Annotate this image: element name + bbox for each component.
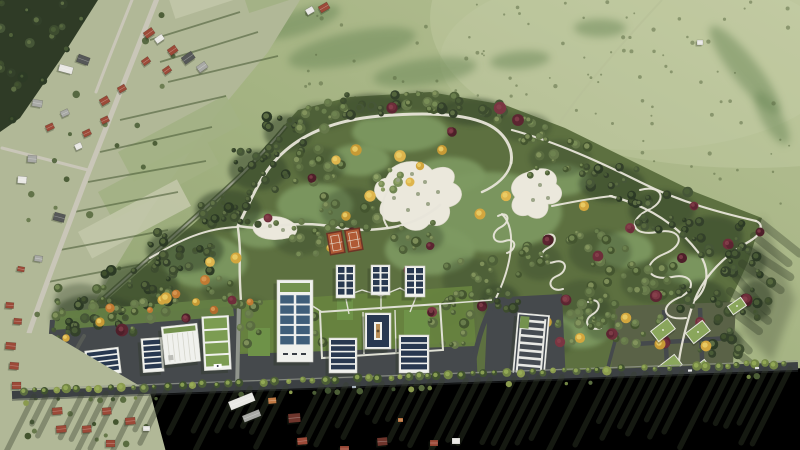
tree-highlight	[711, 297, 715, 301]
tree-highlight	[479, 106, 485, 112]
solar-panel	[401, 357, 427, 362]
tree-highlight	[150, 286, 155, 291]
road-tree	[418, 385, 424, 391]
tree-highlight	[340, 223, 344, 227]
solar-panel	[347, 267, 354, 273]
tree-highlight	[252, 182, 255, 185]
solar-panel	[382, 322, 389, 340]
meadow-speckle	[650, 122, 654, 126]
tree-highlight	[545, 171, 548, 174]
yellow-highlight	[576, 334, 581, 339]
green-roof-strip	[280, 283, 310, 292]
solar-panel	[338, 289, 345, 295]
tree-highlight	[735, 237, 738, 240]
tree-highlight	[101, 285, 104, 288]
tree-highlight	[404, 92, 407, 95]
tree-highlight	[686, 220, 691, 225]
tree-highlight	[563, 167, 566, 170]
tree-highlight	[467, 311, 472, 316]
meadow-speckle	[749, 1, 752, 4]
tree-highlight	[316, 240, 321, 245]
meadow-speckle	[629, 49, 633, 53]
tree-highlight	[123, 315, 127, 319]
tree-highlight	[390, 186, 394, 190]
plaza-tree	[406, 208, 410, 212]
building-b7	[368, 265, 391, 299]
building-b6	[333, 265, 356, 302]
tree-highlight	[585, 245, 590, 250]
road-tree	[334, 389, 340, 395]
road-tree-highlight	[86, 387, 89, 390]
forest-tree-light	[61, 2, 64, 5]
entrance-mark	[292, 353, 297, 355]
road-tree	[289, 390, 293, 394]
village-house	[11, 382, 22, 391]
tree-highlight	[449, 342, 452, 345]
tree-highlight	[578, 233, 582, 237]
meadow-speckle	[621, 35, 625, 39]
meadow-speckle	[662, 54, 664, 56]
village-tree	[28, 191, 35, 198]
tree-highlight	[570, 339, 574, 343]
maroon-highlight	[515, 117, 520, 122]
yellow-highlight	[476, 210, 481, 215]
road-tree-highlight	[471, 371, 474, 374]
tree-highlight	[580, 171, 584, 175]
meadow-speckle	[739, 121, 743, 125]
tree-highlight	[330, 220, 335, 225]
tree-highlight	[578, 300, 584, 306]
tree-highlight	[162, 234, 165, 237]
solar-panel	[338, 267, 345, 273]
tree-highlight	[606, 267, 612, 273]
tree-highlight	[439, 104, 444, 109]
tree-highlight	[670, 222, 674, 226]
tree-highlight	[586, 288, 592, 294]
tree-highlight	[297, 234, 302, 239]
tree-highlight	[575, 231, 577, 233]
meadow-speckle	[582, 17, 584, 19]
meadow-speckle	[638, 75, 642, 79]
village-tree	[72, 91, 79, 98]
tree-highlight	[193, 248, 197, 252]
tree-highlight	[296, 164, 301, 169]
tree-highlight	[244, 340, 249, 345]
tree-highlight	[750, 288, 753, 291]
tree-highlight	[728, 336, 734, 342]
tree-highlight	[709, 351, 713, 355]
road-tree-highlight	[301, 377, 304, 380]
meadow-speckle	[583, 57, 585, 59]
road-tree	[357, 388, 364, 395]
tree-highlight	[576, 320, 582, 326]
tree-highlight	[569, 235, 574, 240]
yellow-highlight	[97, 319, 102, 324]
tree-highlight	[313, 331, 317, 335]
solar-panel	[382, 274, 389, 279]
yellow-highlight	[207, 259, 212, 264]
tree-highlight	[203, 219, 206, 222]
tree-highlight	[290, 235, 294, 239]
tree-highlight	[169, 286, 172, 289]
meadow-speckle	[651, 28, 655, 32]
meadow-speckle	[476, 51, 480, 55]
tree-highlight	[102, 271, 107, 276]
meadow-speckle	[641, 151, 645, 155]
yellow-highlight	[333, 157, 338, 162]
solar-panel	[416, 268, 423, 273]
tree-highlight	[212, 215, 217, 220]
tree-highlight	[615, 182, 618, 185]
tree-highlight	[249, 162, 254, 167]
meadow-speckle	[307, 70, 310, 73]
meadow-speckle	[734, 72, 736, 74]
tree-highlight	[149, 303, 153, 307]
tree-highlight	[300, 140, 304, 144]
tree-highlight	[589, 301, 592, 304]
road-tree-highlight	[425, 374, 428, 377]
forest-tree-light	[64, 46, 68, 50]
tree-highlight	[245, 219, 248, 222]
meadow-speckle	[587, 74, 589, 76]
meadow-speckle	[316, 15, 318, 17]
tree-highlight	[494, 117, 499, 122]
tree-highlight	[160, 252, 166, 258]
road-tree	[588, 381, 592, 385]
village-tree	[34, 312, 40, 318]
tree-highlight	[753, 310, 756, 313]
tree-highlight	[645, 266, 650, 271]
meadow-speckle	[690, 41, 694, 45]
tree-highlight	[294, 157, 299, 162]
solar-panel	[296, 305, 310, 314]
tree-highlight	[231, 214, 237, 220]
tree-highlight	[243, 203, 248, 208]
solar-panel	[373, 287, 380, 292]
meadow-speckle	[503, 13, 505, 15]
tree-highlight	[746, 248, 749, 251]
tree-highlight	[462, 342, 464, 344]
meadow-speckle	[483, 50, 485, 52]
tree-highlight	[345, 93, 348, 96]
plaza-tree	[426, 202, 430, 206]
meadow-speckle	[315, 54, 317, 56]
tree-highlight	[628, 192, 633, 197]
maroon-highlight	[265, 215, 269, 219]
solar-panel	[296, 315, 310, 324]
house-roof	[340, 446, 349, 450]
orange-highlight	[107, 305, 112, 310]
road-tree-highlight	[694, 363, 699, 368]
tree-highlight	[93, 286, 98, 291]
road-tree-highlight	[287, 379, 290, 382]
tree-highlight	[642, 223, 647, 228]
car	[755, 367, 759, 369]
solar-panel	[331, 365, 355, 370]
tree-highlight	[256, 330, 259, 333]
tree-highlight	[320, 208, 322, 210]
tree-highlight	[302, 110, 307, 115]
tree-highlight	[535, 166, 538, 169]
tree-highlight	[293, 179, 296, 182]
meadow-speckle	[340, 23, 343, 26]
tree-highlight	[378, 106, 382, 110]
maroon-highlight	[679, 255, 683, 259]
village-tree	[134, 123, 140, 129]
road-tree-highlight	[310, 378, 313, 381]
orange-highlight	[147, 307, 150, 310]
tree-highlight	[369, 103, 375, 109]
aerial-site-masterplan-render	[0, 0, 800, 450]
tree-highlight	[210, 290, 213, 293]
tree-highlight	[589, 298, 592, 301]
tree-highlight	[430, 236, 433, 239]
tree-highlight	[634, 167, 637, 170]
tree-highlight	[332, 201, 337, 206]
solar-panel	[373, 280, 380, 285]
tree-highlight	[677, 306, 682, 311]
meadow-speckle	[595, 113, 597, 115]
tree-highlight	[680, 232, 684, 236]
tree-highlight	[392, 92, 397, 97]
road-tree-highlight	[653, 367, 656, 370]
solar-panel	[280, 326, 294, 335]
rooftop-unit	[168, 355, 173, 360]
meadow-speckle	[402, 80, 405, 83]
tree-highlight	[131, 301, 136, 306]
solar-panel	[401, 364, 427, 369]
tree-highlight	[413, 238, 419, 244]
road-tree-highlight	[118, 384, 123, 389]
tree-highlight	[622, 338, 626, 342]
village-tree	[152, 141, 157, 146]
solar-panel	[416, 282, 423, 287]
tree-highlight	[656, 226, 660, 230]
meadow-speckle	[468, 36, 470, 38]
tree-highlight	[681, 285, 684, 288]
road-tree	[89, 397, 93, 401]
yellow-highlight	[702, 342, 707, 347]
meadow-speckle	[670, 70, 673, 73]
meadow-speckle	[481, 53, 483, 55]
road-tree-highlight	[180, 383, 184, 387]
tree-highlight	[739, 221, 743, 225]
tree-highlight	[611, 301, 616, 306]
road-tree-highlight	[734, 363, 737, 366]
solar-panel	[373, 274, 380, 279]
maroon-highlight	[595, 253, 599, 257]
meadow-speckle	[690, 165, 693, 168]
meadow-speckle	[653, 160, 655, 162]
road-tree-highlight	[586, 368, 589, 371]
solar-panel	[407, 282, 414, 287]
tree-highlight	[313, 228, 317, 232]
village-house	[81, 425, 92, 434]
road-tree-highlight	[109, 385, 112, 388]
tree-highlight	[528, 173, 532, 177]
tree-highlight	[598, 232, 603, 237]
tree-highlight	[595, 165, 600, 170]
meadow-speckle	[454, 89, 457, 92]
tree-highlight	[321, 193, 326, 198]
tree-highlight	[177, 246, 182, 251]
solar-panel	[401, 351, 427, 356]
tree-highlight	[698, 235, 703, 240]
tree-highlight	[591, 263, 594, 266]
tree-highlight	[617, 196, 620, 199]
tree-highlight	[60, 310, 64, 314]
meadow-speckle	[611, 122, 614, 125]
tree-highlight	[664, 278, 669, 283]
tree-highlight	[658, 315, 662, 319]
road-tree-highlight	[782, 362, 785, 365]
road-tree-highlight	[366, 375, 370, 379]
road-tree-highlight	[226, 380, 230, 384]
tree-highlight	[696, 218, 701, 223]
meadow-speckle	[424, 25, 428, 29]
solar-panel	[407, 275, 414, 280]
yellow-highlight	[439, 147, 444, 152]
tree-highlight	[207, 267, 212, 272]
tree-highlight	[361, 204, 367, 210]
tree-highlight	[504, 306, 508, 310]
tree-highlight	[325, 100, 330, 105]
tree-highlight	[537, 258, 542, 263]
solar-panel	[407, 288, 414, 293]
road-tree-highlight	[33, 388, 35, 390]
tree-highlight	[296, 125, 302, 131]
yellow-highlight	[162, 294, 168, 300]
road-tree-highlight	[21, 389, 25, 393]
meadow-speckle	[719, 177, 722, 180]
tree-highlight	[659, 265, 665, 271]
orange-highlight	[202, 277, 207, 282]
tree-highlight	[451, 310, 454, 313]
tree-highlight	[641, 332, 644, 335]
tree-highlight	[258, 300, 261, 303]
forest-tree-light	[20, 75, 23, 78]
forest-tree-light	[27, 40, 31, 44]
plaza-tree	[546, 196, 550, 200]
tree-highlight	[364, 224, 369, 229]
tree-highlight	[198, 203, 202, 207]
forest-tree-light	[15, 82, 19, 86]
road-tree-highlight	[703, 363, 708, 368]
tree-highlight	[221, 217, 224, 220]
road-tree-highlight	[445, 372, 450, 377]
tree-highlight	[263, 113, 269, 119]
tree-highlight	[698, 348, 700, 350]
road-tree-highlight	[480, 370, 484, 374]
meadow-speckle	[622, 49, 626, 53]
meadow-speckle	[720, 100, 723, 103]
tree-highlight	[633, 268, 638, 273]
tree-highlight	[496, 288, 499, 291]
solar-panel	[373, 267, 380, 272]
tree-highlight	[505, 291, 510, 296]
tree-highlight	[210, 251, 213, 254]
road-tree-highlight	[141, 385, 146, 390]
meadow-speckle	[710, 113, 714, 117]
solar-panel	[331, 340, 355, 345]
tree-highlight	[173, 299, 176, 302]
tree-highlight	[580, 164, 583, 167]
tree-highlight	[255, 221, 259, 225]
meadow-speckle	[605, 0, 609, 4]
road-tree-highlight	[458, 372, 462, 376]
tree-highlight	[246, 311, 251, 316]
tree-highlight	[206, 287, 209, 290]
tree-highlight	[277, 116, 280, 119]
tree-highlight	[379, 112, 382, 115]
tree-highlight	[424, 98, 430, 104]
road-tree	[754, 373, 760, 379]
yellow-highlight	[396, 152, 402, 158]
green-roof-strip	[520, 316, 530, 329]
orange-highlight	[173, 291, 177, 295]
tree-highlight	[454, 291, 458, 295]
meadow-speckle	[633, 12, 635, 14]
tree-highlight	[371, 206, 373, 208]
tree-highlight	[604, 173, 607, 176]
tree-highlight	[306, 106, 309, 109]
tree-highlight	[149, 242, 152, 245]
tree-highlight	[261, 172, 264, 175]
solar-panel	[331, 346, 355, 351]
tree-highlight	[544, 137, 547, 140]
meadow-speckle	[561, 42, 565, 46]
tree-highlight	[451, 93, 457, 99]
village-house	[376, 437, 388, 447]
yard-tree	[113, 419, 119, 425]
road-tree-highlight	[236, 380, 240, 384]
building-b8	[402, 266, 426, 301]
road-tree	[506, 381, 512, 387]
meadow-speckle	[717, 71, 719, 73]
solar-panel	[401, 344, 427, 349]
tree-highlight	[567, 311, 572, 316]
tree-highlight	[495, 299, 499, 303]
tree-highlight	[238, 167, 241, 170]
orange-highlight	[211, 307, 215, 311]
road-tree	[120, 397, 126, 403]
tree-highlight	[356, 105, 361, 110]
plaza-tree	[423, 180, 427, 184]
road-tree-highlight	[604, 368, 609, 373]
meadow-speckle	[516, 6, 520, 10]
tree-highlight	[222, 296, 226, 300]
tree-highlight	[164, 260, 168, 264]
tree-highlight	[646, 196, 649, 199]
meadow-speckle	[771, 101, 775, 105]
tree-highlight	[650, 280, 656, 286]
plaza-tree	[436, 190, 440, 194]
tree-highlight	[706, 249, 711, 254]
tree-highlight	[545, 254, 547, 256]
forest-tree-light	[60, 24, 63, 27]
tree-highlight	[234, 160, 236, 162]
road-tree-highlight	[562, 368, 564, 370]
maroon-highlight	[449, 129, 453, 133]
meadow-speckle	[641, 99, 645, 103]
tree-highlight	[526, 117, 530, 121]
road-tree-highlight	[492, 371, 495, 374]
tree-highlight	[316, 232, 318, 234]
road-tree-highlight	[433, 373, 437, 377]
building-b3	[158, 323, 202, 368]
tree-highlight	[341, 98, 345, 102]
yellow-highlight	[502, 192, 507, 197]
